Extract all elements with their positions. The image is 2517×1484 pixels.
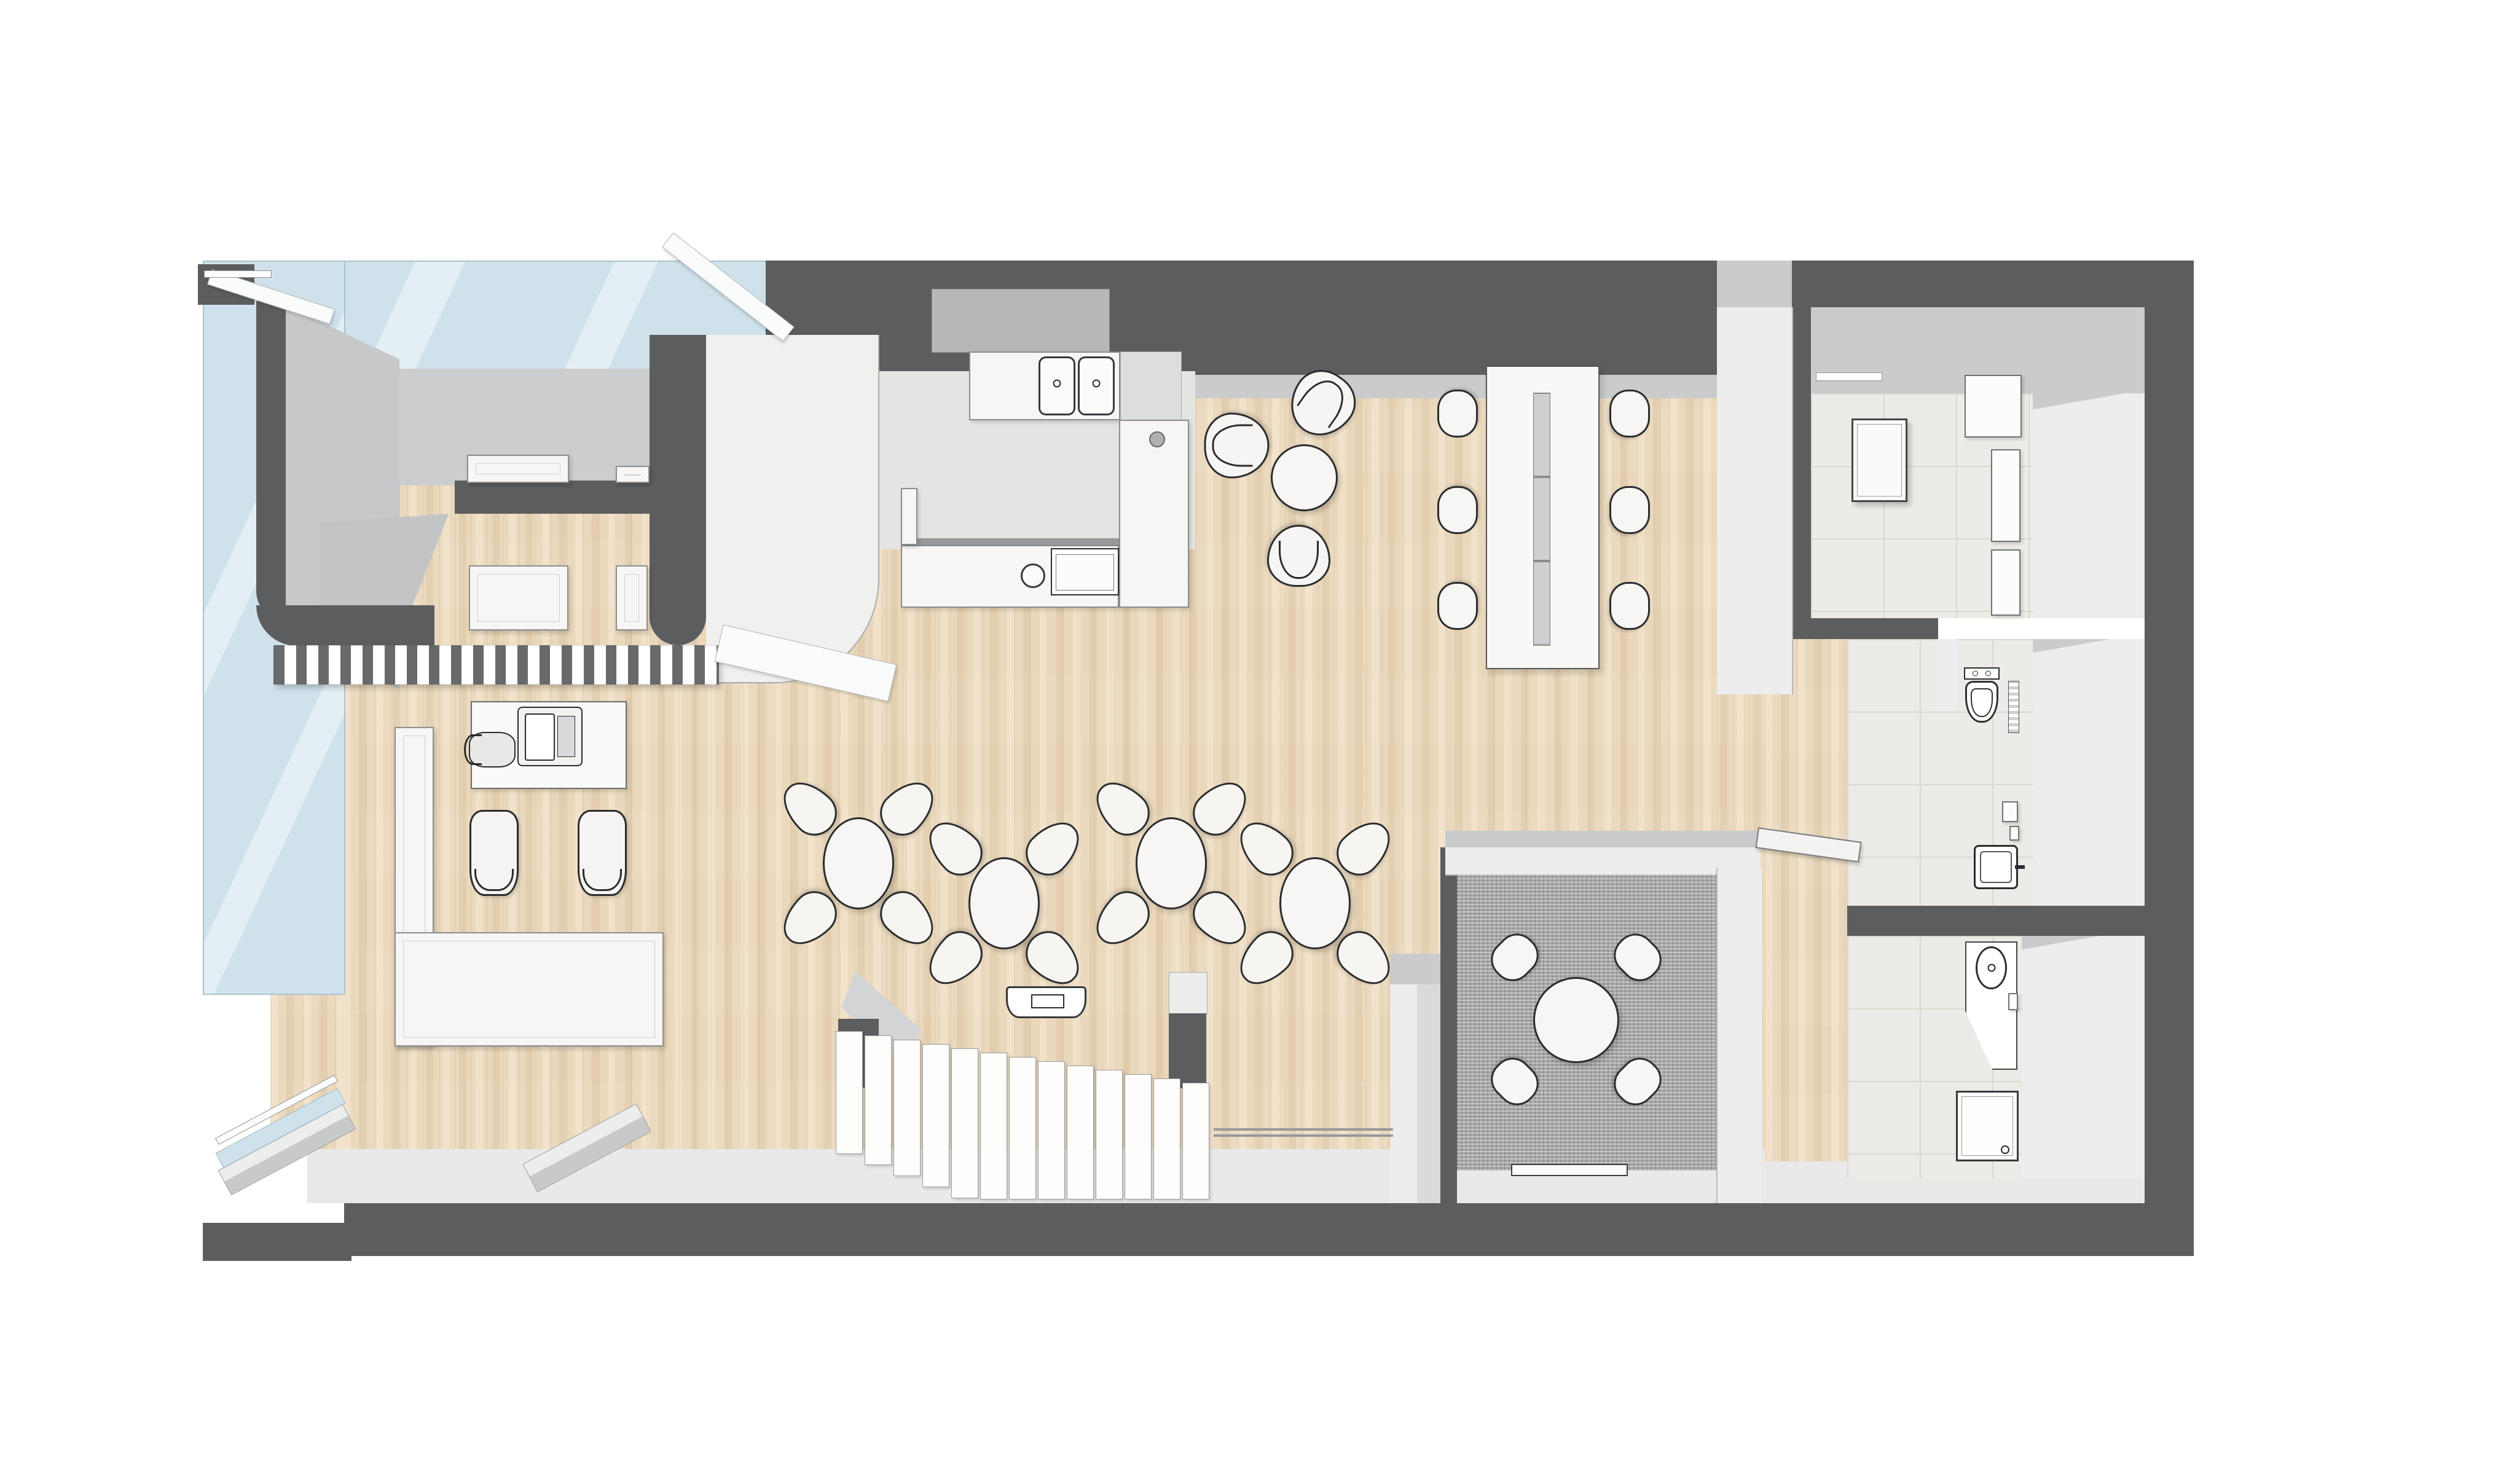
stair-tread-11 [1125, 1074, 1152, 1199]
reception-bench-horizontal [395, 932, 664, 1046]
north-wall-right [1811, 261, 2194, 307]
reception-guest-chair-2 [578, 810, 627, 896]
bath-b-shelf [2002, 801, 2018, 822]
meeting-room-north-wall [1445, 847, 1761, 876]
stair-tread-3 [893, 1040, 921, 1176]
reception-awning [273, 645, 719, 685]
meeting-room-east-wall [1716, 868, 1762, 1203]
kitchen-floor-drain [1149, 431, 1165, 447]
vestibule-shelf [616, 466, 650, 483]
conference-chair-r1 [1609, 390, 1650, 438]
south-wall-left [203, 1223, 351, 1261]
bathroom-c-east-wall [2022, 936, 2145, 1203]
room-a-west-wall [1792, 261, 1811, 618]
stair-tread-9 [1067, 1066, 1094, 1199]
meeting-credenza [1511, 1164, 1628, 1176]
stair-wall-face [1417, 984, 1440, 1203]
vestibule-wall-low [256, 605, 434, 646]
stair-tread-1 [836, 1031, 863, 1154]
kitchen-basin-right [1078, 356, 1115, 415]
south-wall [344, 1203, 2194, 1256]
stair-pillar-right [1169, 1013, 1206, 1088]
rooms-bc-divider-wall [1847, 906, 2145, 936]
bath-b-flush-panel [2008, 681, 2019, 733]
bathroom-b-west-wall [1936, 639, 1958, 712]
bath-a-cabinet-tall-2 [1991, 549, 2020, 616]
cafe-table-2 [968, 857, 1040, 949]
sliding-door-track-a [1214, 1128, 1393, 1131]
stair-tread-13 [1182, 1083, 1209, 1199]
bath-a-cabinet-wide [1965, 375, 2022, 438]
reception-office-chair [469, 732, 516, 768]
water-fountain [1006, 986, 1086, 1018]
stair-tread-4 [922, 1044, 949, 1187]
stair-tread-6 [980, 1053, 1007, 1199]
floor-plan [0, 0, 2517, 1484]
glass-top-rail [204, 270, 272, 278]
bathroom-a-east-wall [2033, 393, 2145, 618]
bath-c-shower-tray [1956, 1091, 2019, 1161]
meeting-room-north-cap [1445, 831, 1761, 847]
bath-c-soap [2008, 993, 2018, 1010]
kitchen-counter-stub [901, 488, 917, 545]
stair-wall-white [1390, 984, 1417, 1203]
kitchen-counter-l-vertical [1119, 420, 1189, 608]
vestibule-wall-left [256, 301, 286, 621]
meeting-round-table [1533, 977, 1619, 1063]
east-partition-cap [1717, 261, 1792, 307]
meeting-room-west-wall [1440, 847, 1457, 1203]
bath-a-shelf [1816, 372, 1882, 381]
kitchen-backsplash [901, 538, 1119, 545]
kitchen-fridge-top [932, 289, 1110, 353]
vestibule-bench-top [467, 455, 569, 483]
reception-guest-chair-1 [469, 810, 519, 896]
sliding-door-track-b [1214, 1134, 1393, 1137]
conference-cable-channel [1534, 393, 1550, 645]
stair-tread-10 [1096, 1070, 1123, 1199]
conference-chair-r2 [1609, 486, 1650, 534]
conference-chair-r3 [1609, 582, 1650, 630]
bath-c-basin [1976, 946, 2007, 989]
conference-chair-l1 [1437, 390, 1478, 438]
conference-chair-l3 [1437, 582, 1478, 630]
cafe-table-3 [1136, 817, 1207, 909]
kitchen-basin-left [1039, 356, 1075, 415]
corridor-wood-floor [1765, 618, 1847, 1161]
bath-b-toilet-tank [1964, 667, 2000, 680]
kitchen-round-sink [1021, 563, 1045, 588]
vestibule-bench-side [616, 565, 648, 630]
east-wall [2145, 261, 2194, 1256]
bath-b-sink [1974, 845, 2018, 889]
north-wall [766, 261, 1792, 375]
stair-tread-7 [1009, 1057, 1036, 1199]
kitchen-dishwasher [1051, 548, 1119, 595]
bathroom-c-south-strip [1847, 1179, 2145, 1203]
stair-tread-12 [1153, 1078, 1180, 1199]
stair-tread-5 [951, 1048, 978, 1198]
reception-laptop [517, 707, 583, 766]
rooms-ab-divider-wall [1780, 618, 1938, 639]
vestibule-wall-right [650, 335, 706, 645]
bath-a-cabinet-tall-1 [1991, 449, 2020, 542]
cafe-table-1 [823, 817, 894, 909]
vestibule-wall-mid [455, 481, 651, 514]
bath-a-mat [1851, 418, 1907, 502]
lounge-coffee-table [1271, 444, 1338, 511]
stair-wall-cap [1390, 954, 1440, 984]
kitchen-counter-extension [1120, 351, 1182, 420]
conference-chair-l2 [1437, 486, 1478, 534]
bath-b-soap [2009, 826, 2019, 841]
stair-tread-2 [865, 1035, 892, 1165]
vestibule-bench-low [469, 565, 568, 630]
bathroom-b-east-wall [2033, 639, 2145, 906]
stair-pillar-right-top [1169, 972, 1207, 1015]
east-partition [1717, 307, 1793, 694]
cafe-table-4 [1279, 857, 1351, 949]
stair-tread-8 [1038, 1061, 1065, 1199]
